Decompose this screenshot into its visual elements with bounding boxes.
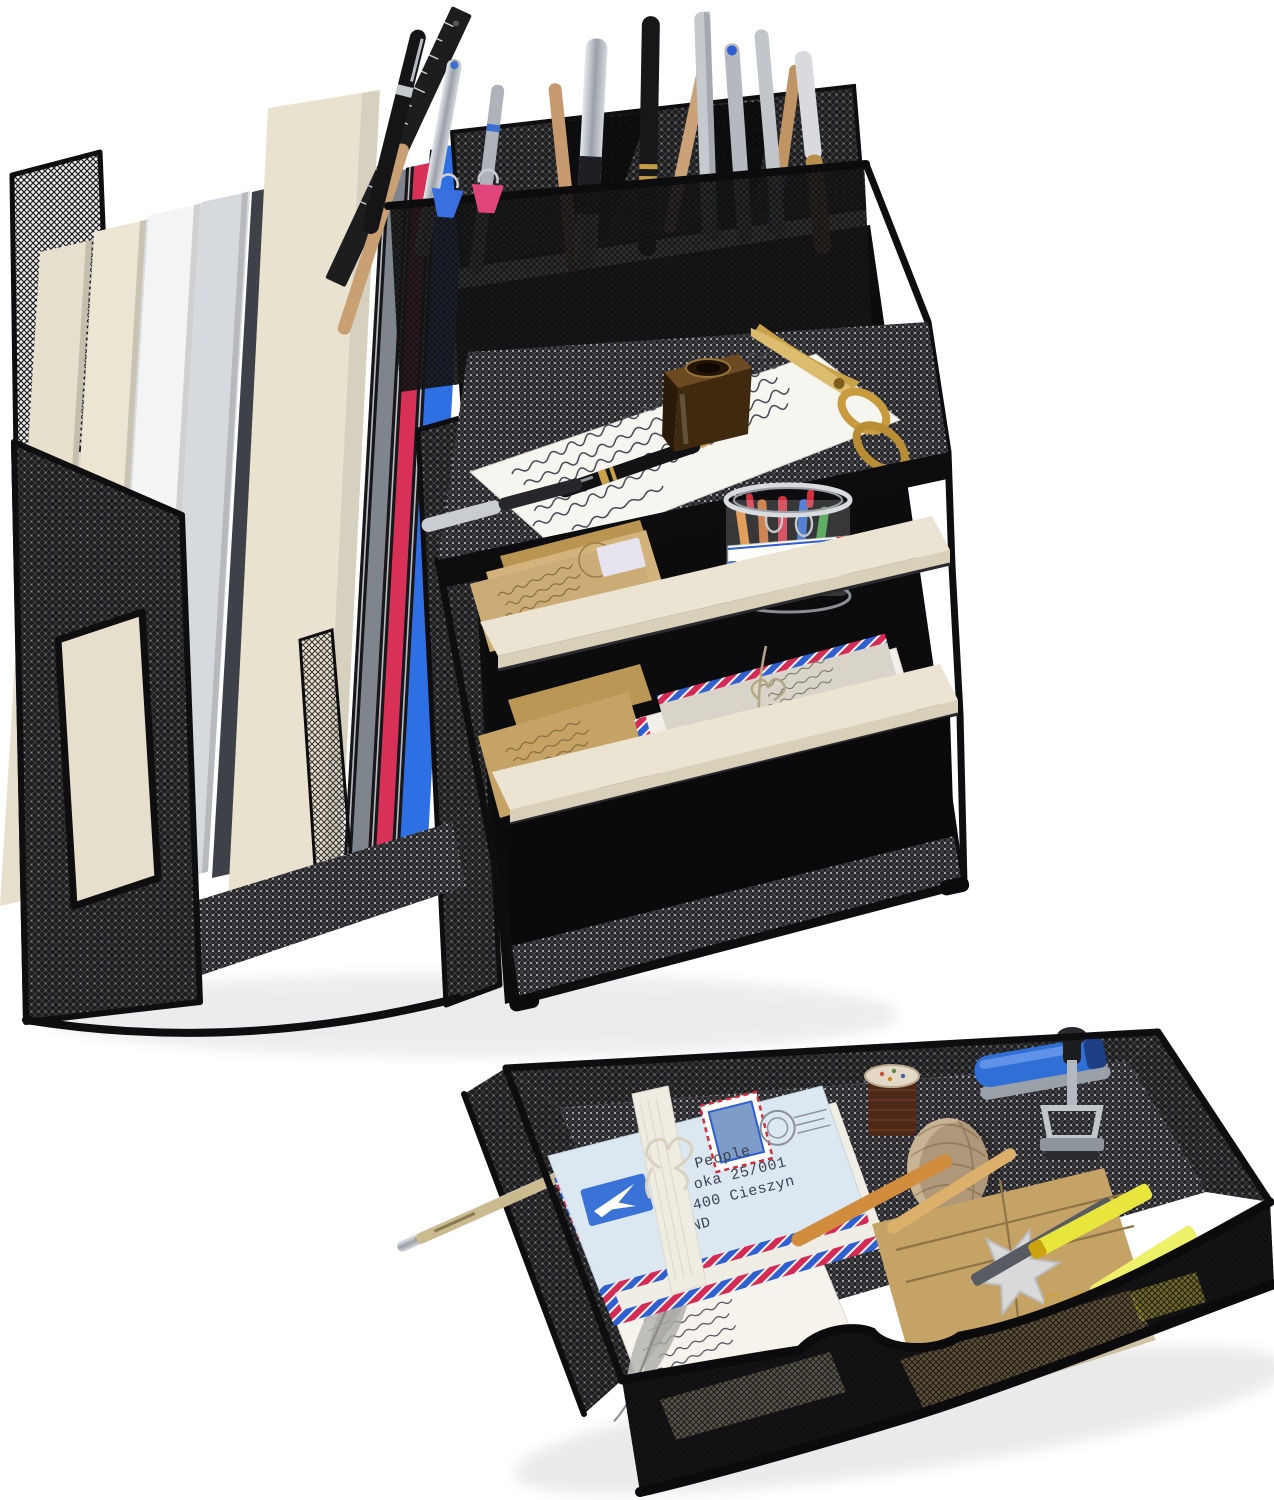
main-organizer: PAPER CLIPS <box>0 6 970 1033</box>
desk-organizer-scene: PAPER CLIPS <box>0 0 1274 1500</box>
panel-cutout-folder-view <box>58 612 158 906</box>
thread-spool <box>865 1065 919 1136</box>
left-side-panel <box>14 442 200 1022</box>
product-photo-canvas: PAPER CLIPS <box>0 0 1274 1500</box>
